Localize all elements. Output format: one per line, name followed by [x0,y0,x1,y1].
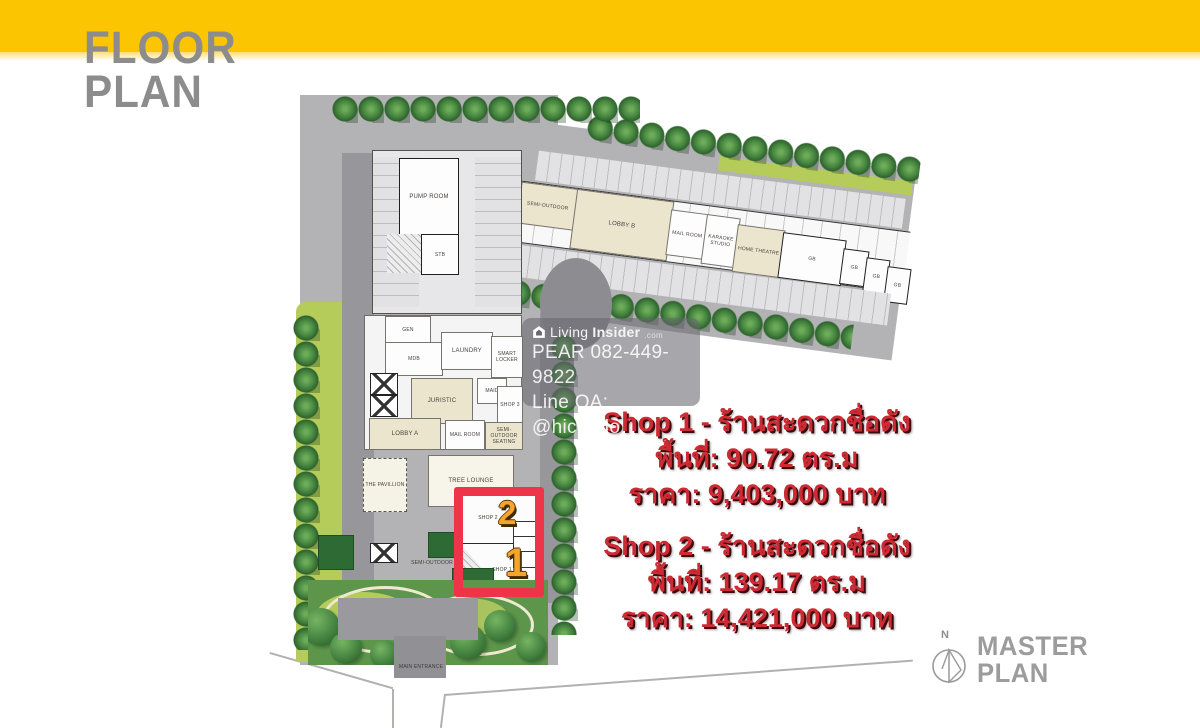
shop1-area: พื้นที่: 90.72 ตร.ม [572,440,942,476]
planter-1 [318,535,354,570]
entrance-apron [338,598,478,640]
elevator-core-2 [370,395,398,417]
elevator-core-1 [370,373,398,395]
livinginsider-house-icon [532,325,546,339]
tree-row-top [332,95,640,129]
semi-outdoor-lower-label: SEMI-OUTDOOR [404,560,460,566]
garden-tree-6 [516,632,546,662]
brand-suffix: Insider [592,324,640,340]
watermark-phone: PEAR 082-449-9822 [532,340,690,390]
shop2-area: พื้นที่: 139.17 ตร.ม [572,564,942,600]
room-the-pavillion: THE PAVILLION [363,458,407,512]
watermark: LivingInsider.com PEAR 082-449-9822 Line… [522,318,700,406]
highlight-number-1: 1 [505,541,527,586]
shop2-price: ราคา: 14,421,000 บาท [572,600,942,636]
page-canvas: FLOOR PLAN SEMI-OUTDOOR LOBBY B MAIL ROO… [0,0,1200,728]
entrance-drive [394,636,446,678]
room-mail-room-tower: MAIL ROOM [445,420,485,450]
watermark-brand: LivingInsider.com [532,324,690,340]
room-laundry: LAUNDRY [441,332,493,370]
parking-stalls-right [475,157,521,307]
watermark-line-oa: Line OA: @hicondo [532,390,690,440]
master-plan-badge: MASTER PLAN [977,633,1088,687]
room-lobby-a: LOBBY A [369,418,441,450]
room-smart-locker: SMART LOCKER [491,336,523,378]
room-lobby-b: LOBBY B [569,189,674,261]
page-title: FLOOR PLAN [84,26,237,114]
brand-prefix: Living [550,324,588,340]
room-semi-outdoor-seating: SEMI-OUTDOOR SEATING [485,422,523,450]
main-entrance-label: MAIN ENTRANCE [386,664,456,670]
room-shop-3: SHOP 3 [497,386,523,424]
parking-structure: PUMP ROOM STB [372,150,522,314]
room-gen: GEN [385,316,431,344]
master-plan-line2: PLAN [977,660,1088,687]
room-pump-room: PUMP ROOM [399,158,459,236]
garden-tree-5 [484,610,516,642]
page-title-line2: PLAN [84,70,237,114]
listing-shop2: Shop 2 - ร้านสะดวกชื่อดัง พื้นที่: 139.1… [572,528,942,636]
room-gb-large: GB [777,232,846,286]
elevator-core-3 [370,543,398,563]
shop2-title: Shop 2 - ร้านสะดวกชื่อดัง [572,528,942,564]
page-title-line1: FLOOR [84,26,237,70]
room-mdb: MDB [385,342,443,376]
highlight-number-2: 2 [498,494,516,532]
brand-tld: .com [644,331,663,340]
ramp-hatch [387,234,421,273]
room-stb: STB [421,234,459,275]
shop1-price: ราคา: 9,403,000 บาท [572,476,942,512]
room-semi-outdoor-wing: SEMI-OUTDOOR [516,182,579,231]
master-plan-line1: MASTER [977,633,1088,660]
